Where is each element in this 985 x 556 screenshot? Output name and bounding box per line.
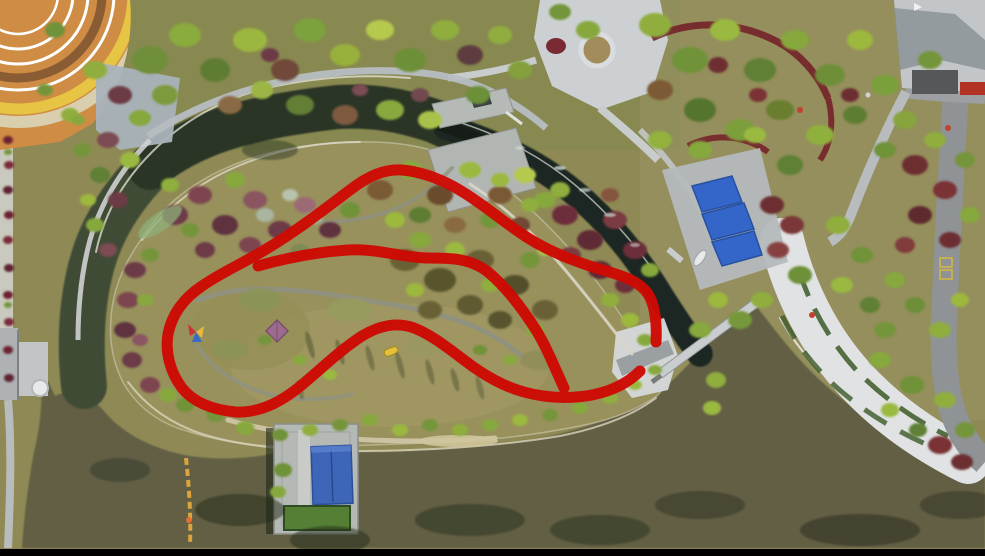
- tree-canopy: [90, 458, 150, 482]
- tree-canopy: [960, 207, 980, 223]
- tree-canopy: [457, 295, 483, 315]
- tree-canopy: [532, 300, 558, 320]
- tree-canopy: [826, 216, 850, 234]
- tree-canopy: [797, 107, 803, 113]
- tree-canopy: [491, 173, 509, 187]
- tree-canopy: [418, 111, 442, 129]
- tree-canopy: [97, 132, 119, 148]
- tree-canopy: [422, 419, 438, 431]
- round-tank: [32, 380, 48, 396]
- tree-canopy: [760, 196, 784, 214]
- tree-canopy: [137, 294, 153, 306]
- tree-canopy: [515, 146, 525, 150]
- tree-canopy: [195, 242, 215, 258]
- tree-canopy: [871, 75, 899, 95]
- tree-canopy: [641, 263, 659, 277]
- tree-canopy: [466, 86, 490, 104]
- tree-canopy: [874, 142, 896, 158]
- tree-canopy: [272, 429, 288, 441]
- tree-canopy: [514, 167, 536, 183]
- tree-canopy: [728, 311, 752, 329]
- tree-canopy: [512, 414, 528, 426]
- tree-canopy: [851, 247, 873, 263]
- tree-canopy: [332, 419, 348, 431]
- tree-canopy: [457, 45, 483, 65]
- tree-canopy: [424, 268, 456, 292]
- tree-canopy: [647, 80, 673, 100]
- tree-canopy: [340, 202, 360, 218]
- tree-canopy: [928, 436, 952, 454]
- tree-canopy: [688, 141, 712, 159]
- tree-canopy: [99, 243, 117, 257]
- tree-canopy: [452, 424, 468, 436]
- tree-canopy: [4, 149, 12, 155]
- tree-canopy: [473, 345, 487, 355]
- tree-canopy: [240, 288, 280, 312]
- tree-canopy: [751, 292, 773, 308]
- tree-canopy: [809, 312, 815, 318]
- tree-canopy: [409, 207, 431, 223]
- tree-canopy: [117, 292, 139, 308]
- tree-canopy: [352, 84, 368, 96]
- tree-canopy: [225, 172, 245, 188]
- tree-canopy: [482, 419, 498, 431]
- tree-canopy: [924, 132, 946, 148]
- tree-canopy: [655, 491, 745, 519]
- tree-canopy: [406, 283, 424, 297]
- tree-canopy: [929, 322, 951, 338]
- tree-canopy: [212, 215, 238, 235]
- tree-canopy: [945, 125, 951, 131]
- tree-canopy: [905, 297, 925, 313]
- tree-canopy: [282, 189, 298, 201]
- tree-canopy: [141, 248, 159, 262]
- tree-canopy: [847, 30, 873, 50]
- tree-canopy: [233, 28, 267, 52]
- tree-canopy: [90, 167, 110, 183]
- tree-canopy: [881, 403, 899, 417]
- tree-canopy: [169, 23, 201, 47]
- tree-canopy: [330, 44, 360, 66]
- tree-canopy: [550, 515, 650, 545]
- tree-canopy: [4, 318, 14, 326]
- tree-canopy: [286, 95, 314, 115]
- tree-canopy: [684, 98, 716, 122]
- tree-canopy: [706, 372, 726, 388]
- tree-canopy: [4, 264, 14, 272]
- tree-canopy: [4, 161, 14, 169]
- tree-canopy: [893, 111, 917, 129]
- tree-canopy: [251, 81, 273, 99]
- tree-canopy: [601, 293, 619, 307]
- tree-canopy: [672, 47, 708, 73]
- tree-canopy: [4, 302, 12, 308]
- tree-canopy: [45, 22, 65, 38]
- tree-canopy: [411, 88, 429, 102]
- tree-canopy: [302, 424, 318, 436]
- tree-canopy: [270, 486, 286, 498]
- tree-canopy: [955, 152, 975, 168]
- tree-canopy: [366, 20, 394, 40]
- tree-canopy: [951, 454, 973, 470]
- tree-canopy: [415, 504, 525, 536]
- tree-canopy: [841, 88, 859, 102]
- tree-canopy: [577, 230, 603, 250]
- tree-canopy: [392, 424, 408, 436]
- tree-canopy: [550, 182, 570, 198]
- tree-canopy: [520, 252, 540, 268]
- tree-canopy: [549, 4, 571, 20]
- tree-canopy: [744, 58, 776, 82]
- tree-canopy: [781, 30, 809, 50]
- tree-canopy: [708, 292, 728, 308]
- tree-canopy: [108, 192, 128, 208]
- tree-canopy: [444, 217, 466, 233]
- tree-canopy: [188, 186, 212, 204]
- tree-canopy: [908, 206, 932, 224]
- tree-canopy: [200, 58, 230, 82]
- tree-canopy: [274, 463, 292, 477]
- tree-canopy: [909, 423, 927, 437]
- tree-canopy: [521, 198, 539, 212]
- tree-canopy: [866, 93, 871, 98]
- tree-canopy: [4, 374, 14, 382]
- tree-canopy: [488, 26, 512, 44]
- tree-canopy: [459, 162, 481, 178]
- tree-canopy: [488, 311, 512, 329]
- tree-canopy: [749, 88, 767, 102]
- tree-canopy: [939, 232, 961, 248]
- tree-canopy: [955, 422, 975, 438]
- tree-canopy: [212, 340, 248, 360]
- tree-canopy: [4, 211, 14, 219]
- tree-canopy: [503, 355, 517, 365]
- tree-canopy: [934, 392, 956, 408]
- tree-canopy: [258, 335, 272, 345]
- beach-sand: [418, 435, 498, 447]
- gray-building: [912, 70, 958, 94]
- tree-canopy: [869, 352, 891, 368]
- tree-canopy: [744, 127, 766, 143]
- tree-canopy: [385, 212, 405, 228]
- tree-canopy: [951, 293, 969, 307]
- tree-canopy: [159, 388, 177, 402]
- tree-canopy: [256, 208, 274, 222]
- tree-canopy: [132, 46, 168, 74]
- tree-canopy: [542, 409, 558, 421]
- tree-canopy: [114, 322, 136, 338]
- tree-canopy: [394, 48, 426, 72]
- tree-canopy: [630, 243, 640, 247]
- tree-canopy: [418, 301, 442, 319]
- tree-canopy: [271, 59, 299, 81]
- tree-canopy: [933, 181, 957, 199]
- tree-canopy: [294, 197, 316, 213]
- tree-canopy: [508, 61, 532, 79]
- plaza-red-bed: [546, 38, 566, 54]
- tree-canopy: [129, 110, 151, 126]
- tree-canopy: [152, 85, 178, 105]
- tree-canopy: [243, 191, 267, 209]
- tree-canopy: [71, 115, 85, 125]
- tree-canopy: [648, 131, 672, 149]
- tree-canopy: [124, 262, 146, 278]
- tree-canopy: [376, 100, 404, 120]
- tree-canopy: [579, 188, 591, 192]
- tree-canopy: [708, 57, 728, 73]
- tree-canopy: [120, 152, 140, 168]
- tree-canopy: [80, 194, 96, 206]
- tree-canopy: [294, 18, 326, 42]
- tree-canopy: [319, 222, 341, 238]
- tree-canopy: [195, 494, 285, 526]
- tree-canopy: [362, 414, 378, 426]
- boat-ramp-area: [894, 0, 985, 95]
- pier-lawn: [284, 506, 350, 530]
- tree-canopy: [639, 13, 671, 37]
- tree-canopy: [367, 180, 393, 200]
- tree-canopy: [710, 19, 740, 41]
- tree-canopy: [815, 64, 845, 86]
- tree-canopy: [181, 223, 199, 237]
- tree-canopy: [572, 402, 588, 414]
- tree-canopy: [766, 100, 794, 120]
- tree-canopy: [788, 266, 812, 284]
- tree-canopy: [703, 401, 721, 415]
- tree-canopy: [186, 517, 192, 523]
- tree-canopy: [332, 105, 358, 125]
- tree-canopy: [73, 143, 91, 157]
- tree-canopy: [140, 377, 160, 393]
- tree-canopy: [236, 421, 254, 435]
- tree-canopy: [604, 213, 616, 217]
- tree-canopy: [780, 216, 804, 234]
- tree-canopy: [554, 166, 566, 170]
- tree-canopy: [874, 322, 896, 338]
- red-roof-building: [960, 82, 985, 95]
- tree-canopy: [83, 61, 107, 79]
- tree-canopy: [261, 48, 279, 62]
- tree-canopy: [918, 51, 942, 69]
- tree-canopy: [843, 106, 867, 124]
- tree-canopy: [767, 242, 789, 258]
- tree-canopy: [3, 291, 13, 299]
- tree-canopy: [328, 298, 372, 322]
- tree-canopy: [242, 140, 298, 160]
- tree-canopy: [3, 236, 13, 244]
- tree-canopy: [885, 272, 905, 288]
- tree-canopy: [689, 322, 711, 338]
- tree-canopy: [900, 376, 924, 394]
- tree-canopy: [161, 178, 179, 192]
- tree-canopy: [601, 188, 619, 202]
- tree-canopy: [409, 232, 431, 248]
- tree-canopy: [621, 313, 639, 327]
- tree-canopy: [3, 186, 13, 194]
- tree-canopy: [895, 237, 915, 253]
- tree-canopy: [431, 20, 459, 40]
- tree-canopy: [3, 136, 13, 144]
- tree-canopy: [648, 365, 662, 375]
- tree-canopy: [806, 125, 834, 145]
- tree-canopy: [488, 186, 512, 204]
- aerial-photo: [0, 0, 985, 556]
- tree-canopy: [132, 334, 148, 346]
- tree-canopy: [86, 218, 104, 232]
- tree-canopy: [122, 352, 142, 368]
- tree-canopy: [902, 155, 928, 175]
- tree-canopy: [293, 355, 307, 365]
- tree-canopy: [37, 84, 53, 96]
- tree-canopy: [108, 86, 132, 104]
- tree-canopy: [800, 514, 920, 546]
- tree-canopy: [860, 297, 880, 313]
- tree-canopy: [218, 96, 242, 114]
- tree-canopy: [831, 277, 853, 293]
- tree-canopy: [3, 346, 13, 354]
- tree-canopy: [552, 205, 578, 225]
- black-letterbox-bar: [0, 549, 985, 556]
- tree-canopy: [777, 155, 803, 175]
- tree-canopy: [576, 21, 600, 39]
